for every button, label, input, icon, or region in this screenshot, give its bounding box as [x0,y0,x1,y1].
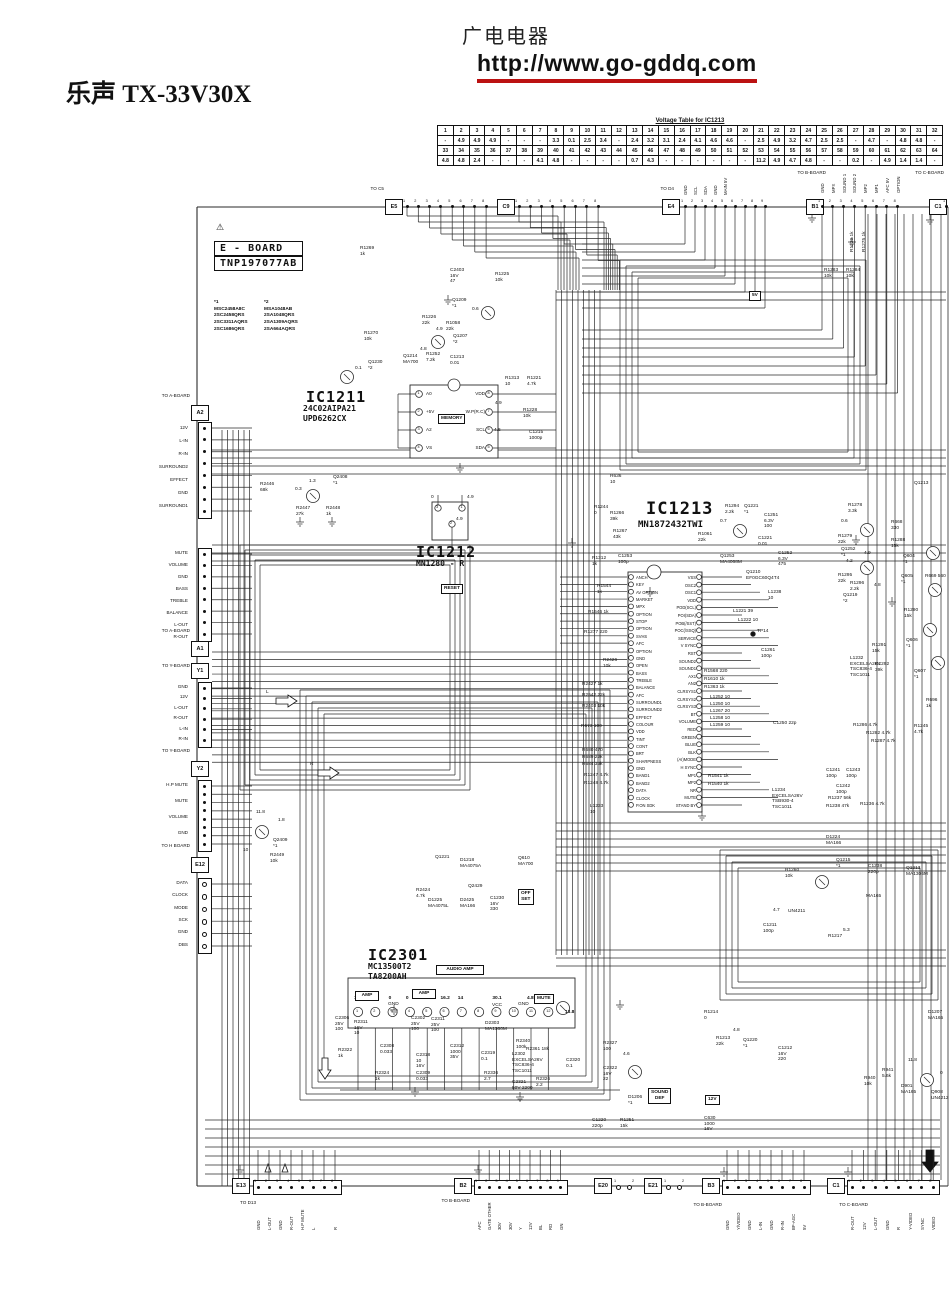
pin-number: 1 [418,391,420,395]
component-label: 0 [940,1071,943,1077]
voltage-pin: 29 [879,126,895,136]
component-label: R1251 15k [620,1118,634,1129]
pin-label: R-IN [780,1221,785,1230]
voltage-pin: 49 [690,146,706,156]
connector-destination: TO D4 [648,186,674,191]
component-label: L1234 EXCELSA26V TSB930-4 TSC1011 [772,788,803,810]
component-label: R940 10k [864,1076,875,1087]
pin-number: 7 [883,199,885,203]
ic-pin-label: CONT [636,744,648,749]
voltage-pin: 51 [722,146,738,156]
component-label: C2318 10 16V [416,1053,430,1070]
ic-pin-label: AFC [636,693,644,698]
pin-number: 5 [767,1179,769,1183]
connector-pin [203,553,206,556]
voltage-value: - [501,136,517,146]
pin-label: L [311,1228,316,1230]
pin-number: 6 [488,427,490,431]
voltage-value: 1.4 [911,156,927,166]
pin-label: 12V [130,425,188,430]
legend-item: 2SC1686QRS [214,327,248,334]
board-part-number: TNP197077AB [214,256,303,271]
pin-label: 30V [497,1222,502,1230]
connector-pin [862,1186,865,1189]
voltage-value: 1.4 [895,156,911,166]
transistor-legend-1: *1MSC2458A8C2SC2458QRS2SC3311AQRS2SC1686… [214,300,248,334]
connector-pin [529,1186,532,1189]
connector-destination: TO C5 [358,186,384,191]
ic-pin-label: SOUND2 [650,659,696,664]
pin-number: 3 [701,199,703,203]
pin-number: 3 [745,1179,747,1183]
voltage-pin: 23 [785,126,801,136]
pin-label: GND [130,830,188,835]
connector-pin [803,1186,806,1189]
connector-pin [540,205,543,208]
legend-title: *1 [214,300,248,307]
pin-label: TREBLE [130,598,188,603]
component-label: Q1214 MA700 [403,354,418,365]
pin-number: 1 [461,505,463,509]
component-label: C1252 6.3V 475 [778,551,792,568]
ic-pin-label: BAND1 [636,773,650,778]
voltage-value: 3.4 [595,136,611,146]
ic-pin-label: +5V [426,409,434,414]
pin-number: 5 [488,445,490,449]
connector-pin [726,1186,729,1189]
pin-label: SOUND 1 [842,174,847,193]
voltage-pin: 60 [864,146,880,156]
pin-number: 4 [437,199,439,203]
connector-pin [864,205,867,208]
pin-number: 8 [594,199,596,203]
pin-label: VOLUME [130,814,188,819]
voltage-table-grid: 1234567891011121314151617181920212223242… [437,125,943,166]
connector-pin [203,834,206,837]
ic-pin-label: A2 [426,427,432,432]
component-label: Q1213 MA1306M [906,866,928,877]
pin-label: VOLUME [130,562,188,567]
voltage-value: - [580,156,596,166]
connector-pin [203,587,206,590]
component-label: D1225 MA4075L [428,898,449,909]
pin-number: 1 [614,1179,616,1183]
component-label: 0.3 [295,487,302,493]
connector-pin [508,1186,511,1189]
component-label: 5.3 [843,928,850,934]
connector-strip [198,780,212,852]
component-label: R1292 39k [875,662,889,673]
component-label: C1251 6.3V 100 [764,513,778,530]
pin-number: 6 [526,1179,528,1183]
voltage-value: 4.8 [911,136,927,146]
component-label: R1610 1k [704,677,725,683]
component-label: R1568 220 [704,669,727,675]
component-label: C1212 16V 220 [778,1046,792,1063]
connector-pin [203,610,206,613]
connector-pin [875,205,878,208]
connector-pin [203,687,206,690]
component-label: 4.9 [864,551,871,557]
legend-item: 2SC3311AQRS [214,320,248,327]
pin-number: 4 [883,1179,885,1183]
component-label: R2403 10k [582,704,605,710]
voltage-value: - [864,156,880,166]
connector-destination: TO C-BOARD [914,170,944,175]
component-label: L1259 10 [710,723,730,729]
ic-pin-label: NR [650,788,696,793]
connector-pin [203,793,206,796]
voltage-pin: 37 [501,146,517,156]
voltage-pin: 47 [658,146,674,156]
component-label: C1213 0.01 [450,355,464,366]
voltage-value: 0.1 [564,136,580,146]
component-label: 0.7 [720,519,727,525]
voltage-pin: 26 [832,126,848,136]
pin-label: BALANCE [130,610,188,615]
voltage-value: 3.2 [643,136,659,146]
component-label: R2336 2.7 [484,1071,498,1082]
voltage-pin: 22 [769,126,785,136]
pin-number: 9 [557,1179,559,1183]
amp-label: AMP [355,991,379,1001]
component-label: 1.3 [309,479,316,485]
component-label: 11.8 [256,810,265,816]
pin-label: R [333,1227,338,1230]
pin-number: 2 [414,199,416,203]
pin-number: 8 [331,1179,333,1183]
voltage-annotation: 16.2 [441,996,450,1002]
connector-pin [203,818,206,821]
transistor-legend-2: *2MSA1048AB2SA1048QRS2SA1309AQRS2SA664AQ… [264,300,298,334]
ic-pin-label: POC(/SSQ) [650,628,696,633]
component-label: R1282 4.7k [866,731,891,737]
gnd-label: GND [518,1002,529,1008]
component-label: R1546 1k [588,610,609,616]
connector-pin [518,205,521,208]
connector-pin [518,1186,521,1189]
voltage-value: 2.4 [469,156,485,166]
component-label: C1220 220p [592,1118,606,1129]
connector-pin [203,427,206,430]
pin-label: H.P MUTE [130,782,188,787]
ic-pin-label: BLK [650,750,696,755]
connector-destination: TO B-BOARD [692,1202,722,1207]
component-label: D2425 MA166 [460,898,475,909]
ic-pin-label: (AI)MODE [650,757,696,762]
component-label: 4.8 [874,583,881,589]
voltage-pin: 3 [469,126,485,136]
voltage-annotation: 0 [431,495,434,501]
pin-number: 2 [373,1009,375,1013]
ic-pin-label: MUTE [650,795,696,800]
pin-number: 12 [546,1009,550,1013]
ic-pin-label: BASS [636,671,647,676]
pin-number: 8 [800,1179,802,1183]
component-label: 4.2 [846,559,853,565]
mute-label: MUTE [534,994,554,1004]
pin-label: SURROUND1 [130,503,188,508]
pin-label: H.P MUTE [300,1210,305,1230]
connector-pin [202,919,207,924]
component-label: R1236 4.7k [860,802,885,808]
component-label: C2322 16V 22 [603,1066,617,1083]
gnd-label: GND [388,1002,399,1008]
pin-label: L-IN [130,726,188,731]
pin-label: GND [130,574,188,579]
component-label: 4.9 [436,327,443,333]
pin-number: 4 [287,1179,289,1183]
connector-pin [585,205,588,208]
pin-label: R-IN [130,451,188,456]
component-label: UN4211 [788,909,805,915]
voltage-pin: 35 [469,146,485,156]
component-label: R2448 1k [326,506,340,517]
component-label: R1286 4.7k [853,723,878,729]
component-label: 1.8 [278,818,285,824]
component-label: R1275 1k [862,231,868,252]
pin-number: 4 [506,1179,508,1183]
pin-number: 5 [425,1009,427,1013]
connector-pin [759,1186,762,1189]
component-label: R2311 16V 10 [354,1020,368,1037]
pin-label: 12V [862,1222,867,1230]
voltage-value: 3.2 [785,136,801,146]
component-label: Q908 UN4212 [931,1090,949,1101]
connector-pin [203,486,206,489]
legend-item: 2SA664AQRS [264,327,298,334]
pin-label: R-OUT [289,1216,294,1230]
voltage-value: - [690,156,706,166]
pin-number: 8 [477,1009,479,1013]
pin-label: GND [885,1220,890,1230]
pin-number: 1 [818,199,820,203]
connector-pin [485,205,488,208]
ic-pin-label: GND [636,656,645,661]
connector-pin [478,1186,481,1189]
voltage-pin: 21 [753,126,769,136]
component-label: MA165 [866,894,881,900]
pin-number: 7 [320,1179,322,1183]
connector-pin [203,697,206,700]
connector-box: B2 [454,1178,472,1194]
reset-label: RESET [441,584,463,594]
connector-pin [203,739,206,742]
connector-pin [781,1186,784,1189]
connector-pin [257,1186,260,1189]
component-label: R1266 39k [610,511,624,522]
voltage-value: 4.7 [864,136,880,146]
connector-pin [203,728,206,731]
ic-pin-label: ANCH [636,575,648,580]
component-label: L1252 10 [710,695,730,701]
pin-label: GND [130,490,188,495]
component-label: R2542 22k [582,693,605,699]
component-label: C2308 0.033 [380,1044,394,1055]
voltage-pin: 55 [785,146,801,156]
pin-label: SURROUND2 [130,464,188,469]
connector-pin [203,450,206,453]
voltage-value: - [611,156,627,166]
component-label: R673 100 [581,724,602,730]
voltage-value: 4.9 [769,156,785,166]
pin-label: BL [538,1225,543,1230]
component-label: R696 1k [926,698,937,709]
audio-amp-label: AUDIO AMP [436,965,484,975]
ic-pin-label: STAND BY [650,803,696,808]
pin-number: 8 [929,1179,931,1183]
component-label: L1238 10 [768,590,781,601]
component-label: L1267 20 [710,709,730,715]
voltage-annotation: 13.8 [565,1010,574,1016]
connector-pin [792,1186,795,1189]
connector-pin [203,474,206,477]
component-label: R2424 4.7k [416,888,430,899]
connector-box: C9 [497,199,515,215]
voltage-value: 4.9 [453,136,469,146]
pin-number: 5 [721,199,723,203]
component-label: R680 470 [582,748,603,754]
connector-pin [279,1186,282,1189]
voltage-value: - [532,136,548,146]
connector-pin [770,1186,773,1189]
component-label: R1279 22k [838,534,852,545]
pin-number: 8 [488,391,490,395]
component-label: R1247 4.7k [584,773,609,779]
connector-box: A2 [191,405,209,421]
voltage-table: Voltage Table for IC1213 123456789101112… [437,118,943,166]
pin-label: GND [683,185,688,195]
voltage-value: - [879,136,895,146]
component-label: R1244 0 [594,505,608,516]
pin-number: 7 [488,409,490,413]
connector-pin [853,205,856,208]
voltage-value: - [832,156,848,166]
voltage-value: - [848,136,864,146]
component-label: R1283 10k [824,268,838,279]
warning-icon: ⚠ [216,222,224,233]
pin-label: SDA [703,186,708,195]
voltage-value: - [516,136,532,146]
connector-pin [574,205,577,208]
component-label: C2320 0.1 [566,1058,580,1069]
voltage-pin: 36 [485,146,501,156]
component-label: R2447 27k [296,506,310,517]
component-label: R2427 1k [582,682,603,688]
ic-pin-label: MPX [636,604,645,609]
connector-box: E13 [232,1178,250,1194]
ic-pin-label: VDD [650,598,696,603]
connector-box: C1 [827,1178,845,1194]
pin-label: Y-VIDEO [908,1213,913,1230]
pin-number: 2 [526,199,528,203]
voltage-pin: 44 [611,146,627,156]
connector-pin [597,205,600,208]
component-label: C1242 100p [836,784,850,795]
component-label: R1214 0 [704,1010,718,1021]
connector-pin [203,498,206,501]
voltage-value: 4.9 [485,136,501,146]
voltage-value: 2.4 [627,136,643,146]
connector-pin [704,205,707,208]
component-label: Q1230 *2 [368,360,382,371]
component-label: Q2408 *1 [333,475,347,486]
connector-destination: TO D13 [226,1200,256,1205]
ic-pin-label: GND [636,766,645,771]
voltage-pin: 7 [532,126,548,136]
component-label: D1207 MA165 [928,1010,943,1021]
voltage-pin: 5 [501,126,517,136]
pin-number: 4 [418,445,420,449]
component-label: R1312 1k [592,556,606,567]
component-label: R1296 2.2k [850,581,864,592]
connector-strip [198,422,212,519]
voltage-pin: 56 [800,146,816,156]
pin-number: 6 [731,199,733,203]
connector-pin [932,1186,935,1189]
board-name: E - BOARD [214,241,303,256]
pin-label: R-OUT [850,1216,855,1230]
voltage-pin: 30 [895,126,911,136]
component-label: 0.1 [355,366,362,372]
voltage-value: 4.8 [895,136,911,146]
component-label: C1230 16V 330 [490,896,504,913]
schematic-page: 广电电器 http://www.go-gddq.com 乐声 TX-33V30X… [0,0,950,1304]
component-label: R2446 68k [260,482,274,493]
pin-label: MP2 [863,184,868,193]
component-label: R1061 22k [698,532,712,543]
connector-pin [831,205,834,208]
pin-label: RD [548,1224,553,1230]
pin-number: 6 [309,1179,311,1183]
connector-pin [764,205,767,208]
connector-pin [559,1186,562,1189]
pin-number: 2 [691,199,693,203]
connector-box: E20 [594,1178,612,1194]
pin-label: DBS [130,942,188,947]
voltage-annotation: 4.8 [527,996,534,1002]
pin-number: 7 [583,199,585,203]
voltage-value: 4.7 [785,156,801,166]
connector-strip [198,548,212,642]
voltage-value: 4.3 [643,156,659,166]
component-label: Q606 *1 [906,638,918,649]
voltage-pin: 48 [674,146,690,156]
component-label: R1225 10k [495,272,509,283]
connector-box: E5 [385,199,403,215]
component-label: L1258 10 [710,716,730,722]
connector-pin [885,1186,888,1189]
connector-pin [301,1186,304,1189]
pin-number: 4 [549,199,551,203]
pin-number: 8 [546,1179,548,1183]
pin-label: CLOCK [130,892,188,897]
pin-label: Y [518,1227,523,1230]
voltage-value: 2.5 [753,136,769,146]
pin-number: 1 [254,1179,256,1183]
component-label: 4.8 [733,1028,740,1034]
component-label: R2327 100 [603,1041,617,1052]
pin-number: 3 [495,1179,497,1183]
connector-pin [203,801,206,804]
voltage-value: - [674,156,690,166]
connector-pin [549,1186,552,1189]
pin-number: 1 [403,199,405,203]
pin-number: 2 [734,1179,736,1183]
pin-label: MAIN 5V [723,178,728,195]
connector-strip [198,878,212,954]
connector-pin [451,205,454,208]
